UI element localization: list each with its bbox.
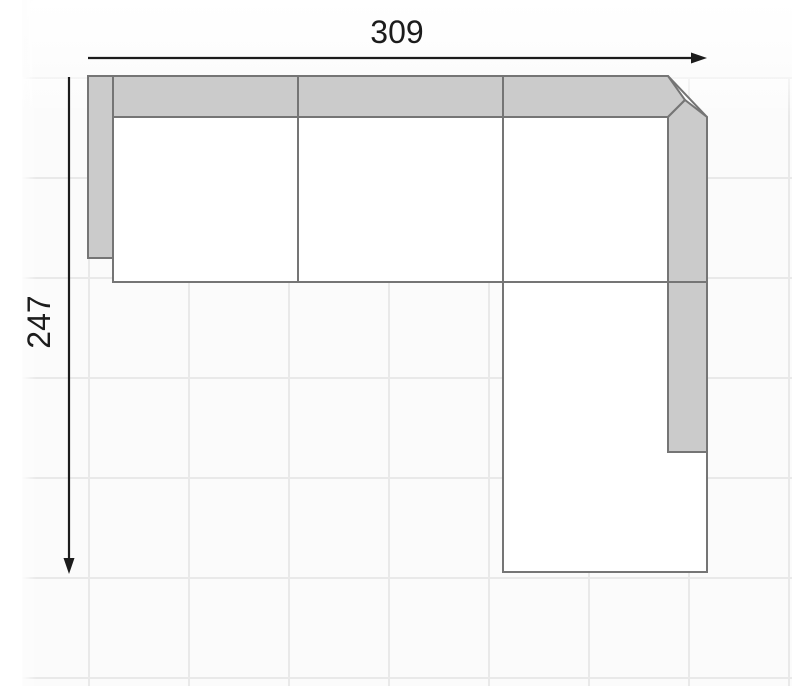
width-dimension: 309 [88,14,707,64]
back-cushion-band [113,76,685,117]
down-arrowhead-icon [64,558,75,574]
height-dimension-label: 247 [21,295,57,348]
height-dimension: 247 [21,77,75,574]
dimension-diagram: 309 247 [0,0,792,686]
right-arrowhead-icon [691,53,707,64]
right-armrest [668,100,707,452]
width-dimension-label: 309 [370,14,423,50]
sofa-plan-drawing: 309 247 [0,0,792,686]
left-armrest [88,76,113,258]
sofa-outline [88,76,707,572]
